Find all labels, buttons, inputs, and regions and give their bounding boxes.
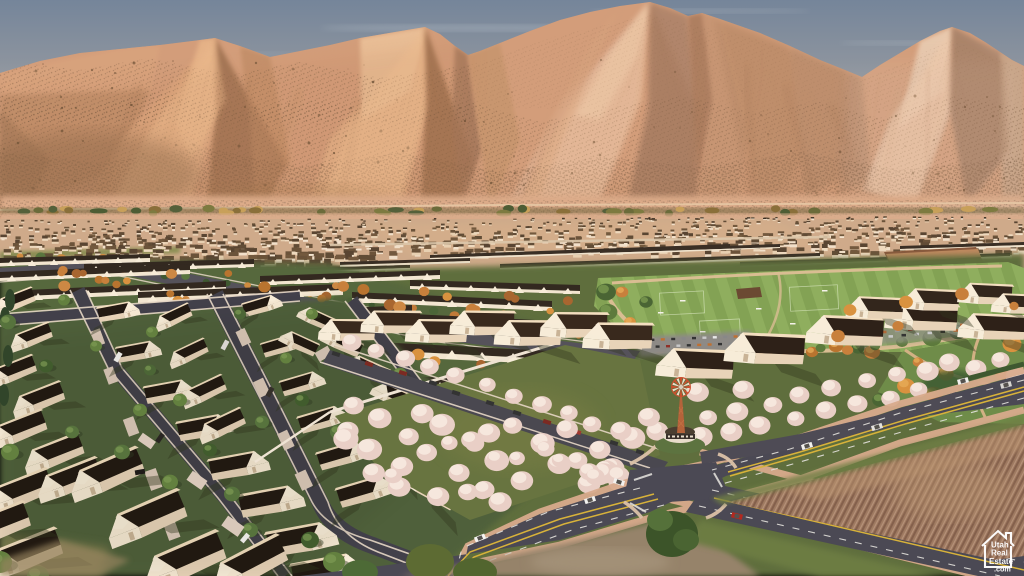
svg-text:.com: .com: [994, 565, 1011, 574]
